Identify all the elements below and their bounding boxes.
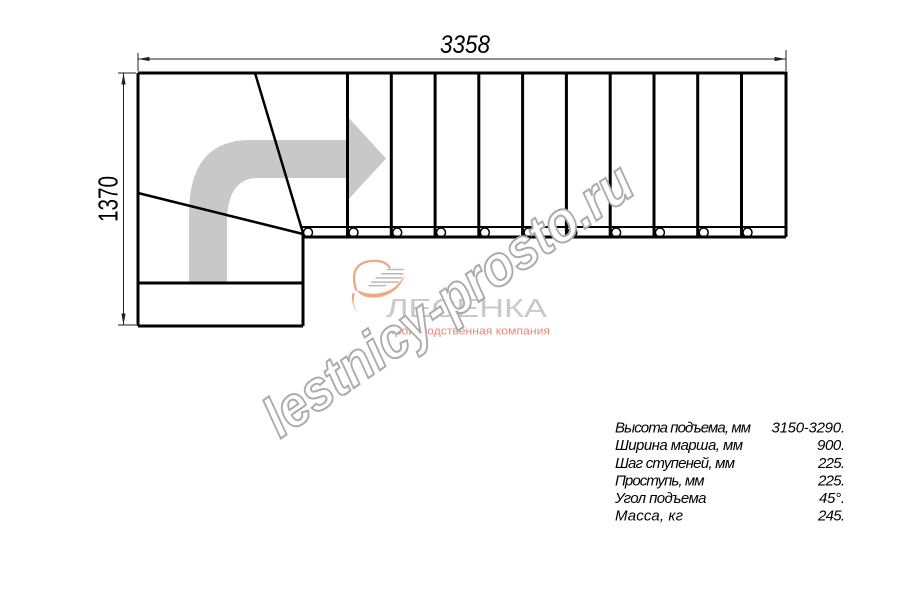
svg-text:Угол подъема: Угол подъема bbox=[614, 490, 707, 507]
svg-text:900.: 900. bbox=[817, 437, 845, 454]
svg-text:3358: 3358 bbox=[440, 31, 490, 59]
svg-text:Ширина марша, мм: Ширина марша, мм bbox=[615, 437, 743, 454]
svg-text:3150-3290.: 3150-3290. bbox=[772, 420, 846, 437]
svg-text:225.: 225. bbox=[817, 455, 845, 472]
svg-text:225.: 225. bbox=[817, 473, 845, 490]
svg-text:1370: 1370 bbox=[93, 176, 124, 222]
svg-text:Шаг ступеней, мм: Шаг ступеней, мм bbox=[615, 455, 735, 472]
svg-text:45°.: 45°. bbox=[819, 490, 845, 507]
svg-text:Масса, кг: Масса, кг bbox=[615, 508, 684, 525]
svg-text:245.: 245. bbox=[817, 508, 845, 525]
svg-text:Высота подъема, мм: Высота подъема, мм bbox=[615, 420, 751, 437]
svg-text:Проступь, мм: Проступь, мм bbox=[615, 473, 705, 490]
